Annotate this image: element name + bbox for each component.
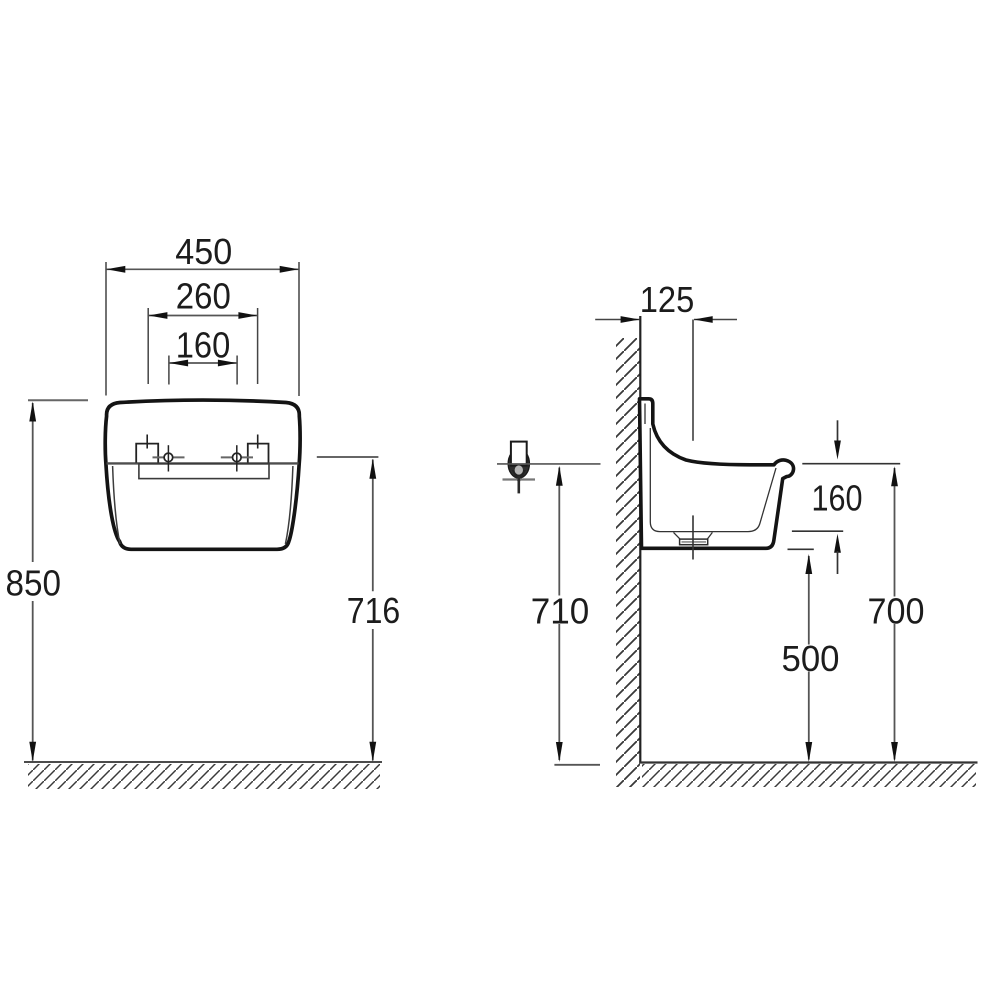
svg-text:125: 125 (640, 279, 695, 320)
svg-text:700: 700 (868, 591, 925, 632)
svg-text:160: 160 (812, 477, 863, 518)
svg-text:716: 716 (347, 590, 401, 631)
svg-text:710: 710 (531, 591, 590, 632)
svg-text:500: 500 (782, 638, 840, 679)
svg-text:260: 260 (176, 276, 231, 317)
svg-text:160: 160 (176, 325, 231, 366)
svg-text:450: 450 (175, 231, 232, 272)
svg-text:850: 850 (6, 563, 62, 604)
